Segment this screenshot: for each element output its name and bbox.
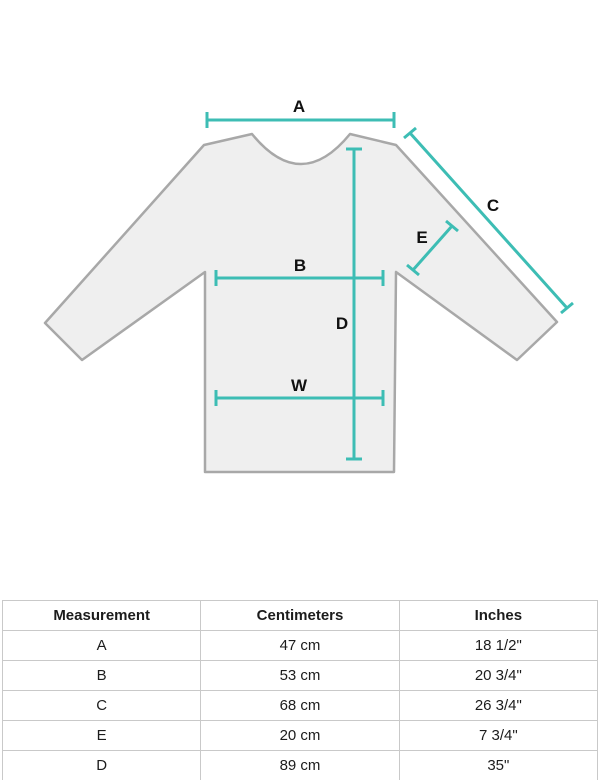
size-table: Measurement Centimeters Inches A 47 cm 1… (2, 600, 598, 780)
cell-centimeters: 47 cm (201, 631, 399, 661)
cell-centimeters: 89 cm (201, 751, 399, 780)
header-centimeters: Centimeters (201, 601, 399, 631)
cell-inches: 18 1/2" (399, 631, 597, 661)
cell-inches: 20 3/4" (399, 661, 597, 691)
table-row: B 53 cm 20 3/4" (3, 661, 598, 691)
table-row: A 47 cm 18 1/2" (3, 631, 598, 661)
table-header-row: Measurement Centimeters Inches (3, 601, 598, 631)
measure-label-e: E (416, 228, 427, 247)
garment-diagram-svg: A B W D C (0, 0, 600, 600)
cell-inches: 35" (399, 751, 597, 780)
cell-centimeters: 53 cm (201, 661, 399, 691)
table-row: C 68 cm 26 3/4" (3, 691, 598, 721)
table-row: E 20 cm 7 3/4" (3, 721, 598, 751)
size-diagram: A B W D C (0, 0, 600, 600)
size-table-body: A 47 cm 18 1/2" B 53 cm 20 3/4" C 68 cm … (3, 631, 598, 780)
cell-inches: 26 3/4" (399, 691, 597, 721)
measure-label-w: W (291, 376, 308, 395)
cell-measurement: E (3, 721, 201, 751)
header-inches: Inches (399, 601, 597, 631)
measurement-a: A (207, 97, 394, 128)
header-measurement: Measurement (3, 601, 201, 631)
cell-measurement: A (3, 631, 201, 661)
cell-inches: 7 3/4" (399, 721, 597, 751)
cell-measurement: D (3, 751, 201, 780)
measure-label-b: B (294, 256, 306, 275)
cell-centimeters: 68 cm (201, 691, 399, 721)
size-table-header: Measurement Centimeters Inches (3, 601, 598, 631)
garment-outline (45, 134, 557, 472)
cell-measurement: B (3, 661, 201, 691)
cell-measurement: C (3, 691, 201, 721)
measure-label-d: D (336, 314, 348, 333)
table-row: D 89 cm 35" (3, 751, 598, 780)
cell-centimeters: 20 cm (201, 721, 399, 751)
measure-label-a: A (293, 97, 305, 116)
measure-label-c: C (487, 196, 499, 215)
